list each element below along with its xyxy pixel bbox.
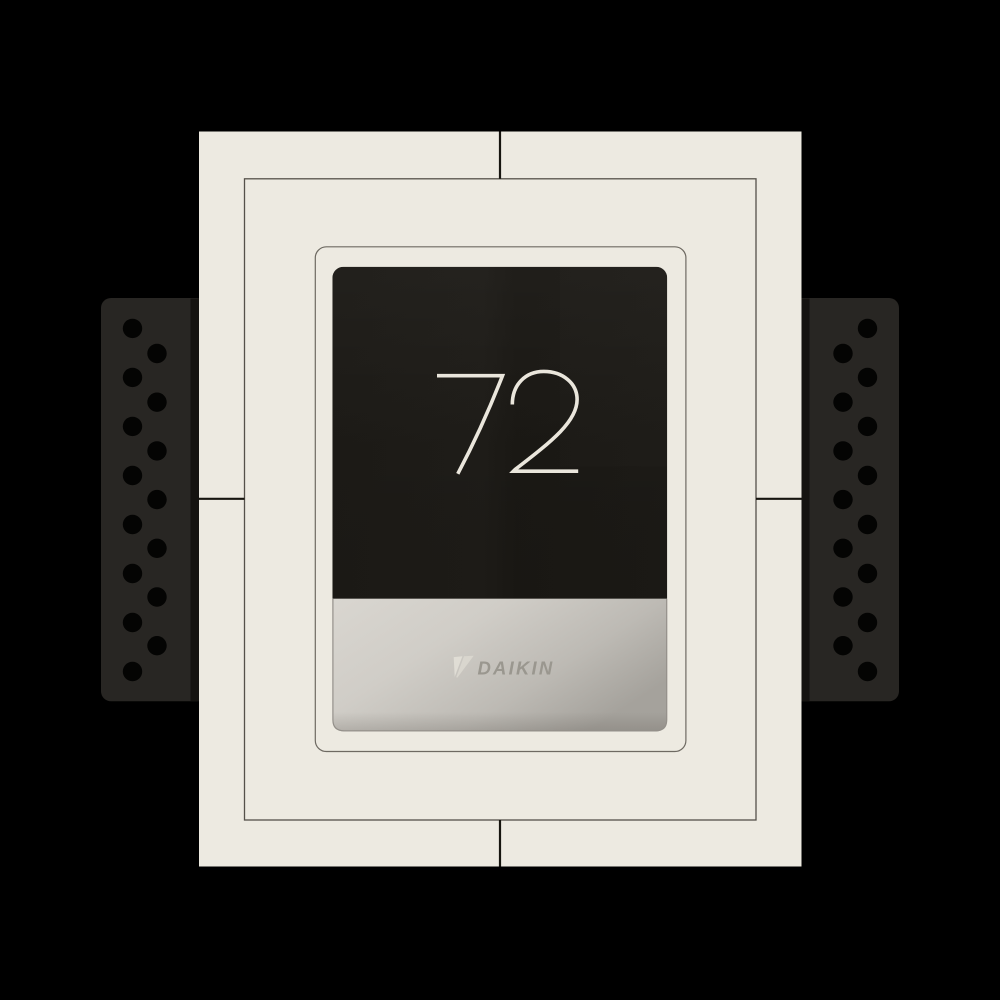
svg-text:DAIKIN: DAIKIN [478, 657, 555, 678]
